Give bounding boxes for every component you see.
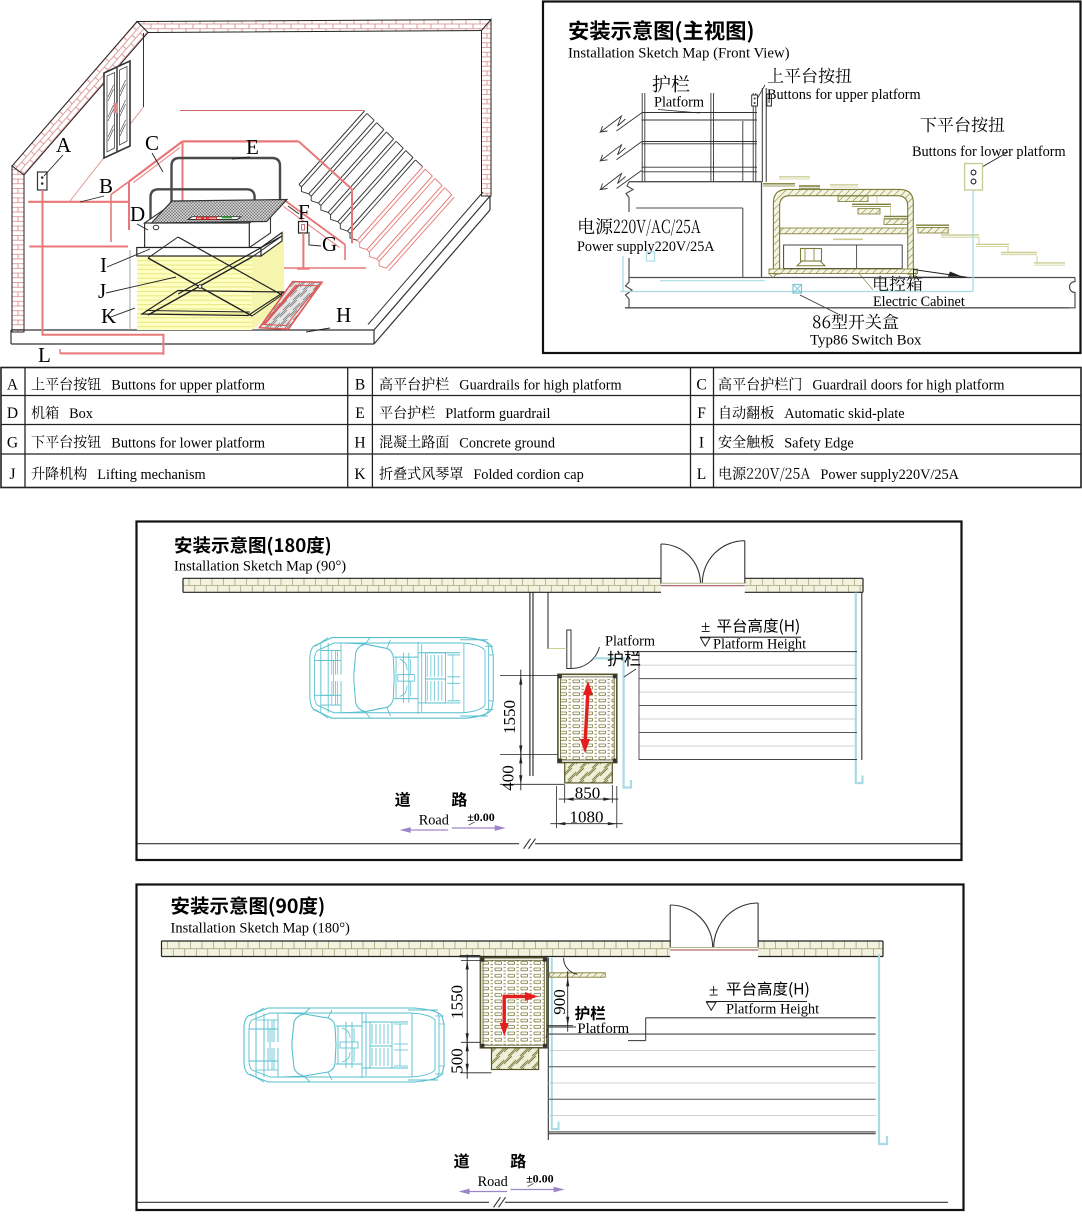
svg-text:E: E bbox=[246, 135, 259, 159]
svg-text:F: F bbox=[697, 405, 706, 422]
svg-text:Platform guardrail: Platform guardrail bbox=[445, 406, 550, 422]
svg-text:Typ86 Switch Box: Typ86 Switch Box bbox=[810, 333, 922, 349]
svg-text:A: A bbox=[7, 377, 19, 394]
svg-text:C: C bbox=[696, 377, 706, 394]
svg-text:1550: 1550 bbox=[448, 985, 467, 1019]
svg-text:Platform Height: Platform Height bbox=[713, 637, 806, 653]
svg-text:±: ± bbox=[709, 981, 718, 1000]
svg-text:Buttons for lower platform: Buttons for lower platform bbox=[912, 144, 1066, 160]
svg-text:Road: Road bbox=[478, 1174, 508, 1190]
svg-text:400: 400 bbox=[499, 765, 518, 791]
svg-text:J: J bbox=[98, 279, 106, 303]
svg-text:±: ± bbox=[701, 617, 710, 636]
svg-text:G: G bbox=[7, 434, 18, 451]
svg-text:Installation Sketch Map (180°): Installation Sketch Map (180°) bbox=[171, 921, 351, 937]
svg-text:Safety Edge: Safety Edge bbox=[784, 435, 853, 451]
svg-text:Road: Road bbox=[419, 813, 449, 829]
svg-text:D: D bbox=[7, 405, 18, 422]
svg-text:Platform Height: Platform Height bbox=[726, 1002, 819, 1018]
svg-text:H: H bbox=[354, 434, 365, 451]
svg-text:Concrete ground: Concrete ground bbox=[459, 435, 555, 451]
svg-text:F: F bbox=[298, 200, 310, 224]
svg-text:850: 850 bbox=[575, 783, 601, 802]
svg-text:B: B bbox=[99, 174, 113, 198]
svg-text:Folded cordion cap: Folded cordion cap bbox=[473, 467, 583, 483]
svg-text:Platform: Platform bbox=[605, 634, 655, 650]
svg-text:Automatic skid-plate: Automatic skid-plate bbox=[784, 406, 904, 422]
svg-text:Power supply220V/25A: Power supply220V/25A bbox=[820, 467, 959, 483]
svg-text:Guardrail doors for high platf: Guardrail doors for high platform bbox=[812, 378, 1004, 394]
svg-text:L: L bbox=[38, 343, 51, 367]
svg-text:K: K bbox=[354, 466, 366, 483]
svg-text:J: J bbox=[9, 466, 15, 483]
svg-text:I: I bbox=[100, 253, 107, 277]
svg-text:D: D bbox=[130, 202, 145, 226]
svg-text:1080: 1080 bbox=[570, 808, 604, 827]
svg-text:±0.00: ±0.00 bbox=[467, 810, 495, 824]
svg-text:I: I bbox=[699, 434, 704, 451]
svg-text:Platform: Platform bbox=[654, 95, 704, 111]
svg-text:±0.00: ±0.00 bbox=[526, 1172, 554, 1186]
svg-text:B: B bbox=[355, 377, 365, 394]
svg-text:L: L bbox=[697, 466, 706, 483]
svg-text:500: 500 bbox=[448, 1048, 467, 1074]
svg-text:H: H bbox=[336, 303, 351, 327]
svg-text:Buttons for upper platform: Buttons for upper platform bbox=[767, 87, 921, 103]
svg-text:1550: 1550 bbox=[500, 700, 519, 734]
svg-text:Guardrails for high platform: Guardrails for high platform bbox=[459, 378, 621, 394]
svg-text:900: 900 bbox=[550, 989, 569, 1015]
svg-text:Box: Box bbox=[69, 406, 93, 422]
svg-text:Buttons for lower platform: Buttons for lower platform bbox=[111, 435, 265, 451]
svg-text:Buttons for upper platform: Buttons for upper platform bbox=[111, 378, 265, 394]
svg-text:C: C bbox=[145, 131, 159, 155]
svg-text:Lifting mechanism: Lifting mechanism bbox=[97, 467, 205, 483]
svg-text:Installation Sketch Map (90°): Installation Sketch Map (90°) bbox=[174, 559, 346, 575]
svg-text:G: G bbox=[322, 232, 337, 256]
svg-text:E: E bbox=[355, 405, 364, 422]
svg-text:A: A bbox=[56, 133, 72, 157]
svg-text:Installation Sketch Map (Front: Installation Sketch Map (Front View) bbox=[568, 46, 790, 62]
